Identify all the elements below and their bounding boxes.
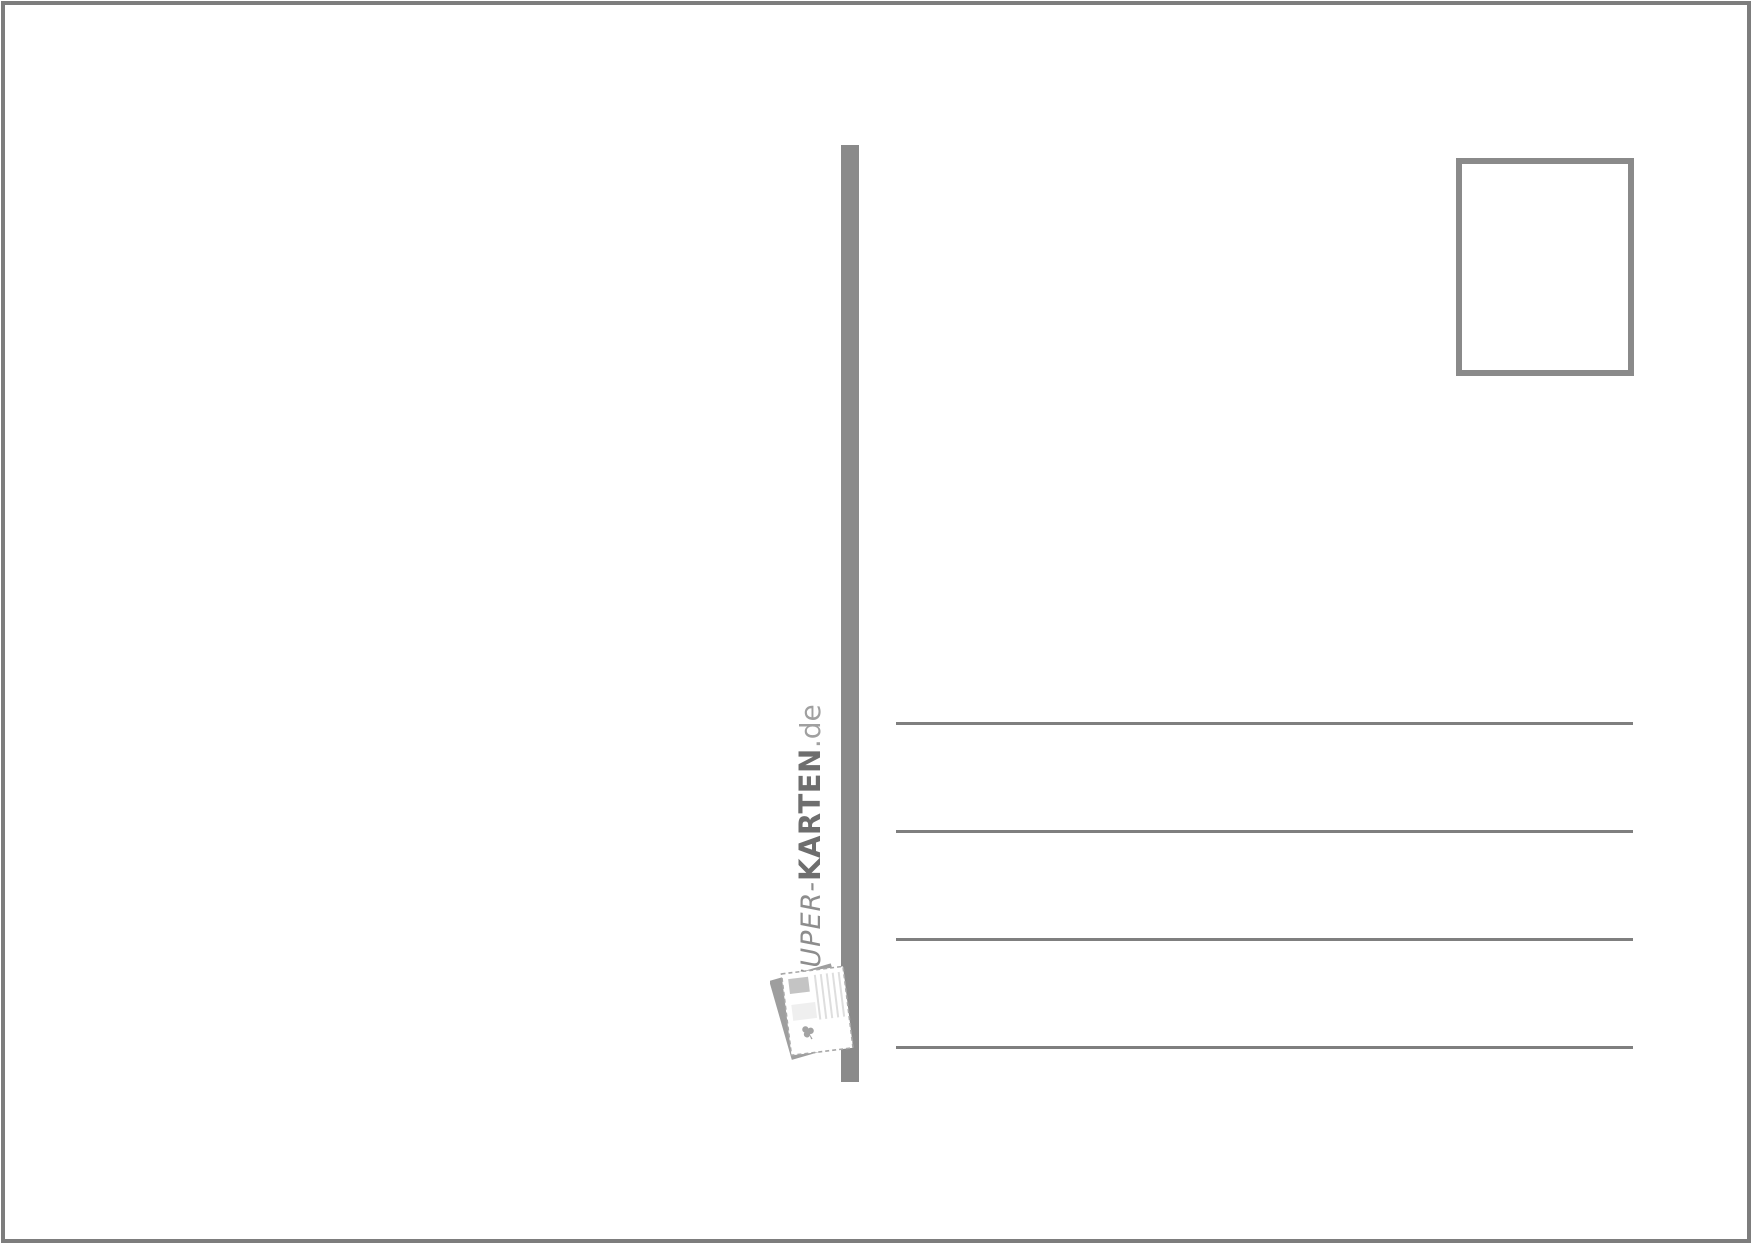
stamp-box (1456, 158, 1634, 376)
center-divider (841, 145, 859, 1082)
postcard-icon-stamp (788, 977, 810, 994)
brand-name: KARTEN (793, 748, 827, 881)
brand-tld: .de (794, 704, 828, 748)
postcard-icon-label (791, 1002, 817, 1021)
address-line (896, 722, 1633, 725)
address-line (896, 1046, 1633, 1049)
address-line (896, 938, 1633, 941)
address-lines (896, 722, 1633, 1049)
postcard-icon (770, 958, 862, 1060)
brand-logo-text: SUPER-KARTEN.de (793, 720, 827, 970)
postcard-page: SUPER-KARTEN.de (0, 0, 1752, 1244)
address-line (896, 830, 1633, 833)
